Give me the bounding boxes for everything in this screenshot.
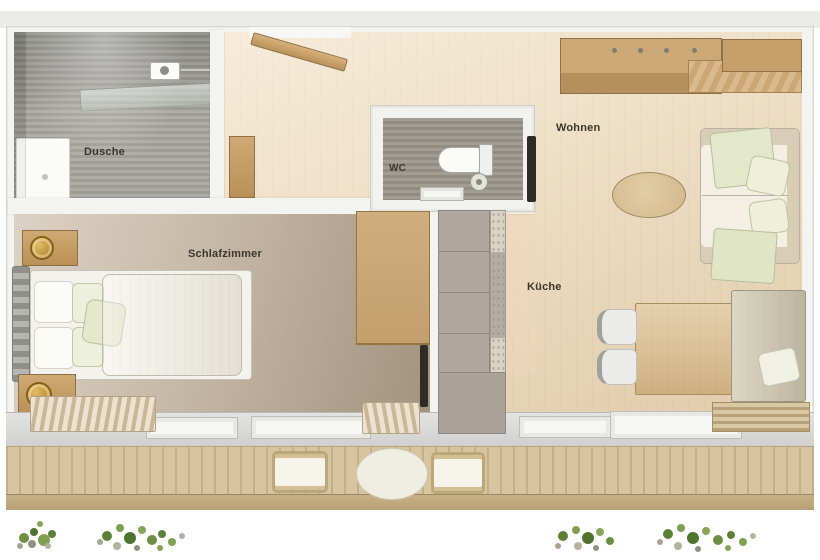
kitchen-cabinets [438, 210, 490, 374]
bed-pillow-white-1 [34, 281, 74, 323]
hall-door-mat [362, 402, 420, 434]
kitchen-sink-inset [491, 252, 505, 338]
label-kitchen: Küche [527, 281, 562, 293]
window-bedroom-2 [251, 416, 371, 439]
label-bathroom: Dusche [84, 146, 125, 158]
sofa-cushion-bottom [710, 228, 777, 284]
shower-head-nozzle [160, 66, 169, 75]
wardrobe-panel [722, 39, 802, 72]
label-bedroom: Schlafzimmer [188, 248, 262, 260]
sideboard-knob-2 [638, 48, 643, 53]
terrace-chair-right [431, 452, 485, 494]
bedroom-wardrobe [356, 211, 430, 345]
window-bedroom-1 [146, 417, 238, 439]
sideboard-knob-3 [664, 48, 669, 53]
dining-table [635, 303, 737, 395]
nightstand-lamp-top [30, 236, 54, 260]
bathroom-cabinet-handle [42, 174, 48, 180]
dining-chair-1 [597, 309, 637, 345]
floor-plan: Dusche WC Wohnen Küche Schlafzimmer [0, 0, 820, 560]
bed-headboard [12, 266, 30, 382]
bed-pillow-white-2 [34, 327, 74, 369]
deck-mat-right [712, 402, 810, 432]
coffee-table [612, 172, 686, 218]
sideboard-knob-4 [692, 48, 697, 53]
plants-right [548, 508, 773, 553]
terrace-table [356, 448, 428, 500]
wc-shower-tray [420, 187, 464, 201]
bedroom-door [420, 345, 428, 407]
sideboard-knob-1 [612, 48, 617, 53]
window-kitchen [519, 416, 611, 438]
bed-duvet [102, 274, 242, 376]
terrace-chair-left [272, 451, 328, 493]
dining-chair-2 [597, 349, 637, 385]
wc-sliding-door [527, 136, 536, 202]
wall-bathroom-hall [210, 30, 224, 206]
label-wc: WC [389, 163, 406, 174]
toilet-tank [479, 144, 493, 176]
label-living: Wohnen [556, 122, 600, 134]
wc-sink-drain [476, 179, 482, 185]
toilet [438, 147, 480, 173]
coat-rack [229, 136, 255, 198]
shower-rail [181, 69, 213, 71]
bedroom-rug [30, 396, 156, 432]
kitchen-base-cabinet [438, 372, 506, 434]
plants-left [12, 508, 212, 553]
